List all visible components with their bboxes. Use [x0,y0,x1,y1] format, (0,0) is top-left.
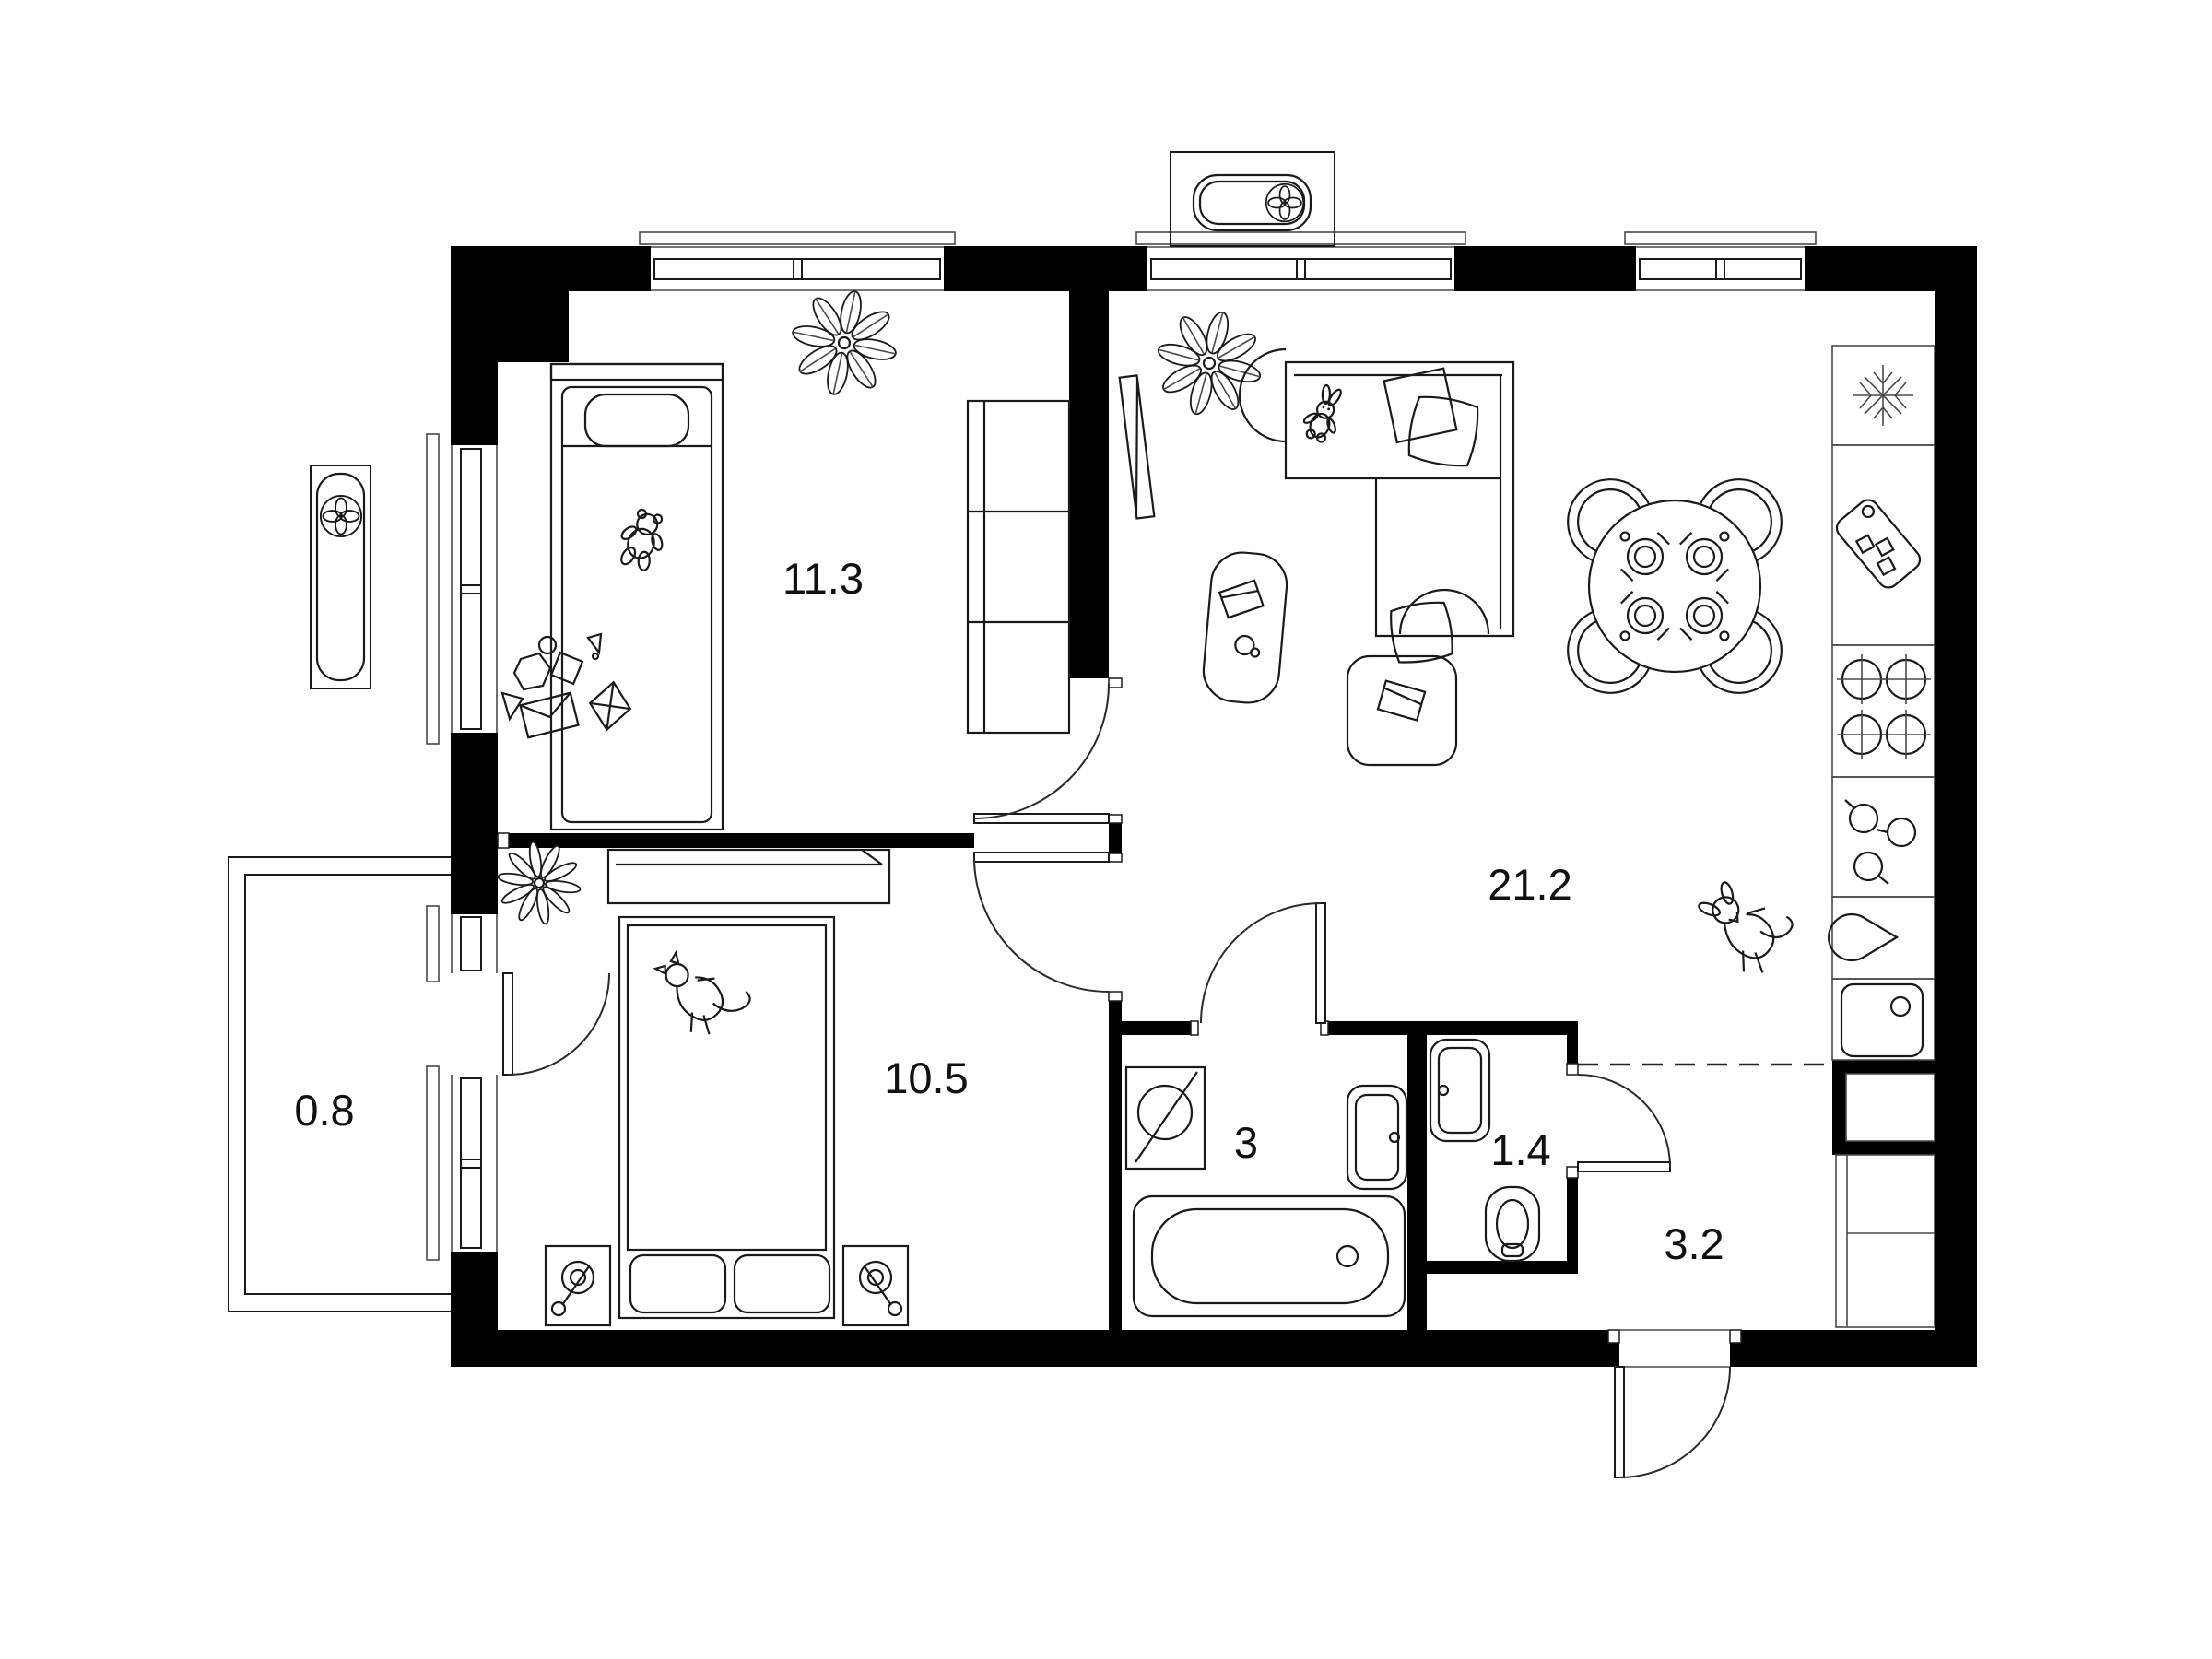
bedroom2-area-label: 10.5 [884,1053,968,1102]
desk-icon [608,850,889,903]
armchair-icon [1347,656,1456,765]
tv-icon [1120,375,1155,518]
window-bedroom1 [640,232,955,290]
cutting-board-icon [1833,496,1924,592]
window-kitchen [1625,232,1816,290]
floor-plan-drawing: 11.3 21.2 10.5 3 1.4 3.2 0.8 [0,0,2212,1659]
corner-sofa-icon [1240,349,1513,665]
bedroom1-area-label: 11.3 [782,554,864,603]
duct-niche [1846,1074,1935,1141]
double-bed-icon [619,917,834,1318]
balcony-railing [229,857,451,1312]
toilet-door [1578,1075,1670,1171]
window-living [1136,232,1465,290]
toilet-icon [1486,1187,1539,1261]
ac-unit-left [311,465,371,688]
window-bedroom2-upper [427,906,497,982]
bedroom2-door [974,853,1109,992]
living-room-furniture [1120,291,1806,982]
kitchen-sink-icon [1841,984,1923,1056]
plant-icon [1137,291,1281,435]
teddy-bear-icon [611,505,674,575]
interior-walls [498,291,1935,1330]
bedroom2-furniture [492,836,908,1325]
single-bed-icon [551,364,723,829]
toilet-area-label: 1.4 [1490,1125,1550,1174]
toy-blocks-icon [502,634,633,737]
cookware-icon [1845,800,1915,884]
hallway-closet [1836,1074,1935,1327]
washing-machine-icon [1126,1067,1205,1169]
balcony-door [503,973,609,1075]
coffee-table-icon [1201,550,1289,706]
fridge-snowflake-icon [1853,365,1913,426]
nightstand-lamp-icon [546,1246,610,1325]
wardrobe-icon [968,401,1069,733]
balcony-area-label: 0.8 [294,1086,354,1135]
bathroom-area-label: 3 [1234,1118,1258,1167]
living-area-label: 21.2 [1488,860,1571,909]
dining-table-icon [1568,479,1782,693]
cat-icon [647,934,753,1042]
window-bedroom2-lower [427,1066,497,1260]
dog-icon [1690,864,1805,982]
bathtub-icon [1134,1196,1405,1316]
hallway-area-label: 3.2 [1664,1219,1724,1268]
entrance-door [1615,1330,1730,1477]
bunny-icon [1298,381,1351,446]
exterior-walls [451,246,1977,1367]
washbasin-icon [1430,1040,1489,1141]
window-bedroom1-left [427,434,497,744]
faucet-drop-icon [1829,914,1897,960]
plant-icon [782,280,906,405]
bedroom1-door [974,684,1109,823]
floor-plan-page: 11.3 21.2 10.5 3 1.4 3.2 0.8 [0,0,2212,1659]
nightstand-lamp-icon [843,1246,908,1325]
washbasin-icon [1347,1086,1406,1189]
bathroom-door [1201,903,1325,1023]
bathroom-fixtures [1126,1067,1406,1316]
kitchen-cabinets [1829,346,1935,1060]
stove-burners-icon [1837,654,1931,759]
pillow-icon [1406,394,1481,469]
flower-icon [492,836,587,930]
pillow-icon [1384,369,1457,442]
